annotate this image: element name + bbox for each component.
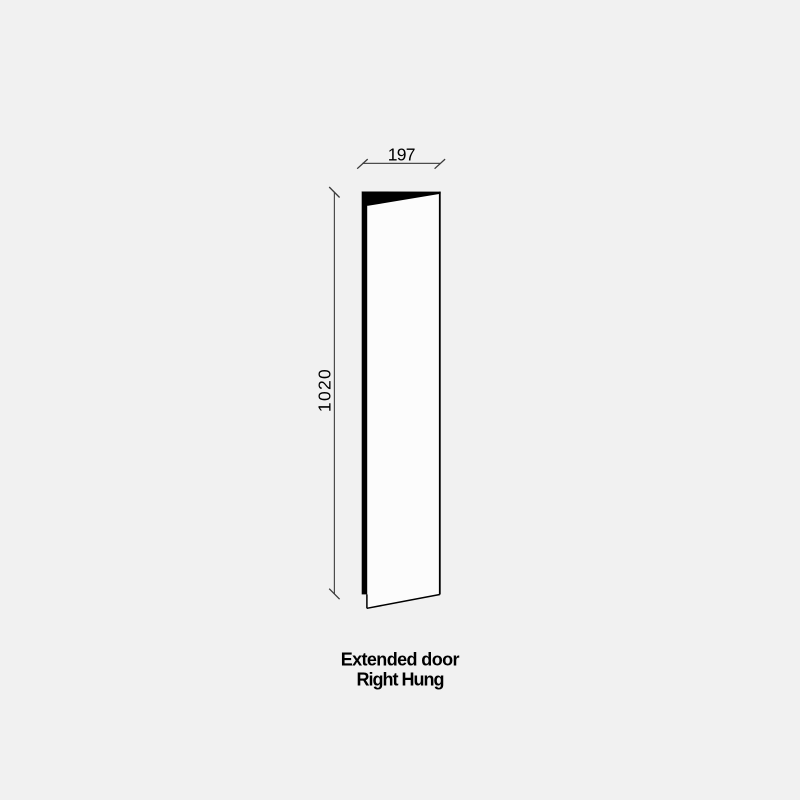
svg-text:197: 197 (388, 144, 415, 164)
svg-text:1020: 1020 (315, 368, 335, 412)
svg-text:Extended door: Extended door (341, 649, 460, 669)
svg-text:Right Hung: Right Hung (357, 670, 444, 690)
